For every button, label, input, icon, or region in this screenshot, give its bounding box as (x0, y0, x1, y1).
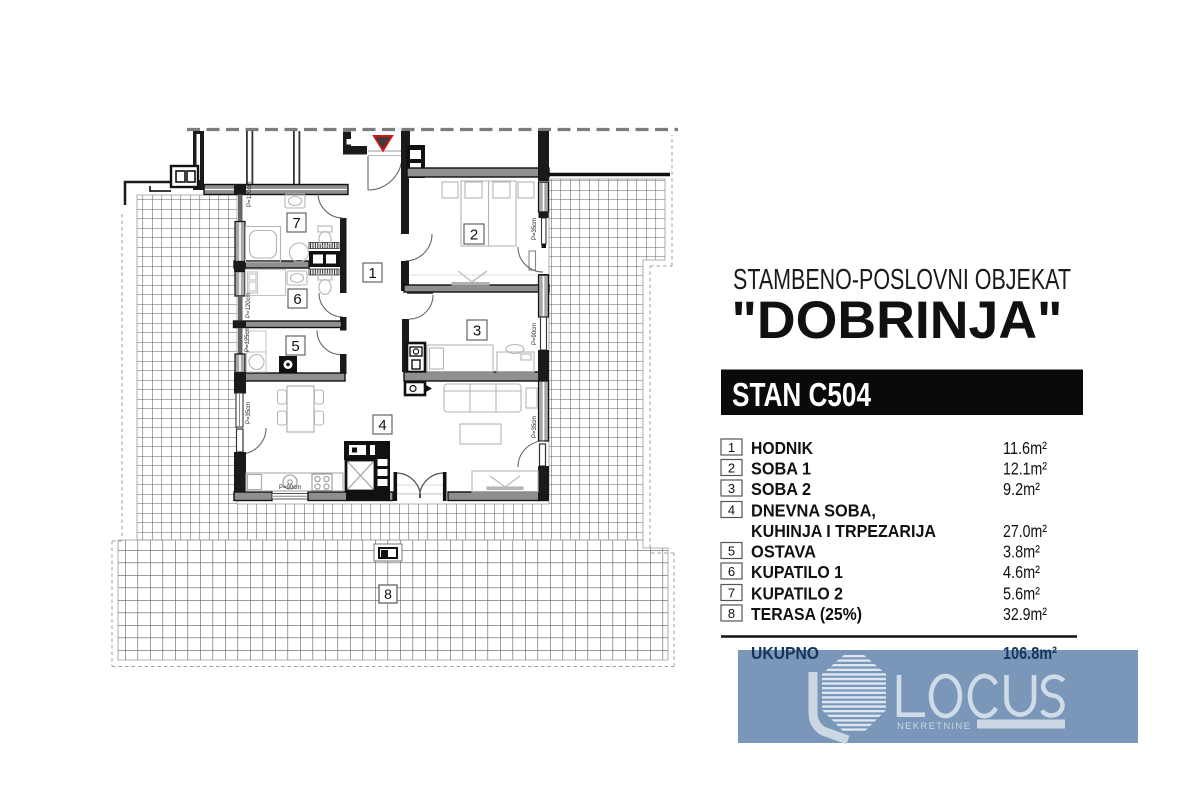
svg-text:DNEVNA SOBA,: DNEVNA SOBA, (751, 501, 876, 521)
svg-text:5: 5 (728, 544, 735, 559)
svg-text:SOBA 1: SOBA 1 (751, 459, 811, 479)
svg-text:KUPATILO 2: KUPATILO 2 (751, 584, 843, 604)
svg-text:4: 4 (728, 503, 735, 518)
svg-text:3: 3 (473, 323, 481, 340)
svg-text:3: 3 (728, 481, 735, 496)
svg-text:12.1m²: 12.1m² (1003, 459, 1047, 479)
svg-text:2: 2 (470, 227, 478, 244)
svg-text:UKUPNO: UKUPNO (751, 643, 819, 663)
svg-text:SOBA 2: SOBA 2 (751, 479, 811, 499)
svg-text:KUPATILO 1: KUPATILO 1 (751, 562, 843, 582)
svg-text:11.6m²: 11.6m² (1003, 438, 1047, 458)
svg-text:P=125cm: P=125cm (245, 326, 251, 352)
svg-text:3.8m²: 3.8m² (1003, 542, 1040, 562)
svg-text:32.9m²: 32.9m² (1003, 604, 1047, 624)
svg-text:NEKRETNINE: NEKRETNINE (897, 721, 971, 732)
svg-text:4.6m²: 4.6m² (1003, 562, 1040, 582)
svg-text:"DOBRINJA": "DOBRINJA" (732, 291, 1063, 350)
svg-text:5: 5 (291, 338, 299, 355)
svg-text:6: 6 (728, 564, 735, 579)
svg-text:5.6m²: 5.6m² (1003, 584, 1040, 604)
svg-text:7: 7 (292, 215, 300, 232)
svg-text:STAN C504: STAN C504 (732, 376, 872, 413)
svg-text:P=90cm: P=90cm (279, 485, 301, 491)
svg-text:27.0m²: 27.0m² (1003, 521, 1047, 541)
svg-text:P=120cm: P=120cm (246, 292, 252, 318)
svg-text:1: 1 (368, 265, 376, 282)
svg-text:106.8m²: 106.8m² (1003, 643, 1057, 663)
svg-text:1: 1 (728, 440, 735, 455)
svg-text:TERASA (25%): TERASA (25%) (751, 604, 862, 624)
svg-text:OSTAVA: OSTAVA (751, 542, 816, 562)
svg-text:P=35cm: P=35cm (532, 416, 538, 438)
svg-text:HODNIK: HODNIK (751, 438, 813, 458)
svg-text:8: 8 (728, 606, 735, 621)
svg-text:P=120cm: P=120cm (247, 181, 253, 207)
svg-text:KUHINJA I TRPEZARIJA: KUHINJA I TRPEZARIJA (751, 521, 936, 541)
svg-text:2: 2 (728, 461, 735, 476)
svg-text:P=90cm: P=90cm (532, 323, 538, 345)
svg-text:6: 6 (293, 291, 301, 308)
svg-text:4: 4 (378, 417, 386, 434)
svg-text:P=35cm: P=35cm (532, 218, 538, 240)
svg-text:8: 8 (384, 586, 392, 602)
svg-text:P=35cm: P=35cm (246, 402, 252, 424)
svg-text:7: 7 (728, 586, 735, 601)
svg-text:9.2m²: 9.2m² (1003, 479, 1040, 499)
